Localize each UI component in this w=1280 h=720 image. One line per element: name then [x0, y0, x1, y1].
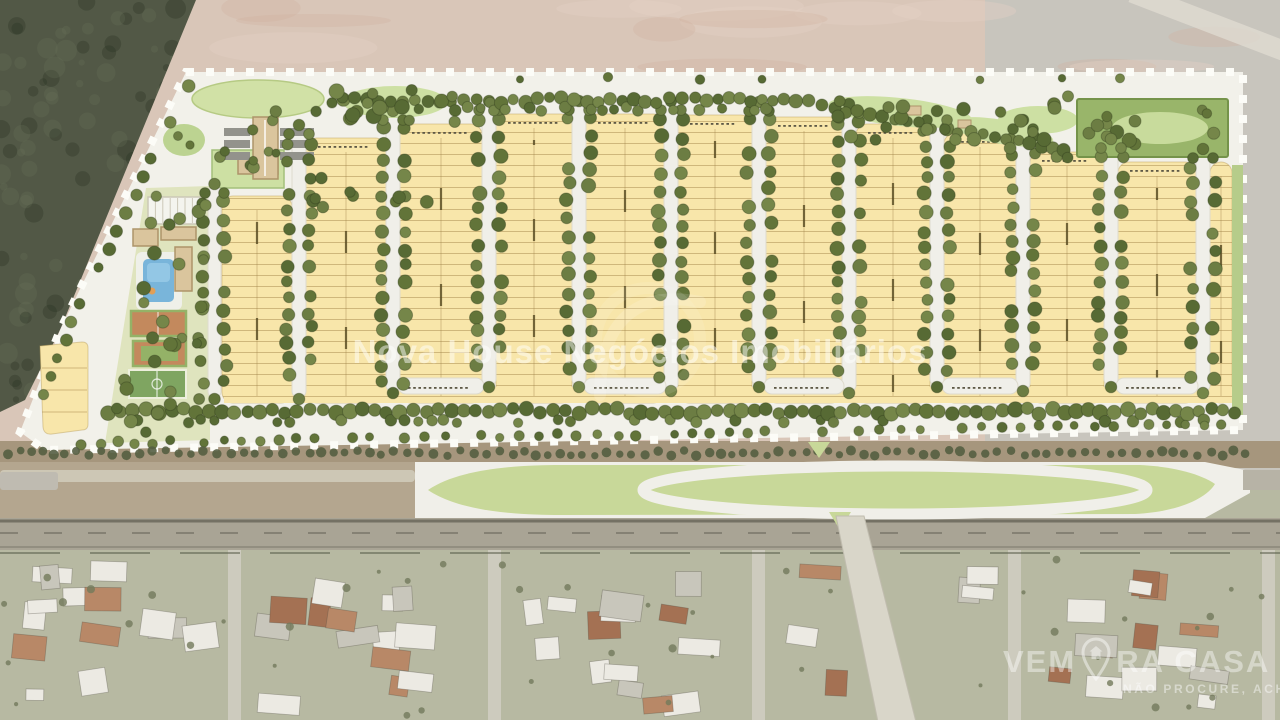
site-plan-canvas	[0, 0, 1280, 720]
masterplan-aerial-view: Nova House Negócios Imobiliários VEM RA …	[0, 0, 1280, 720]
white-haze-overlay	[0, 0, 1280, 720]
